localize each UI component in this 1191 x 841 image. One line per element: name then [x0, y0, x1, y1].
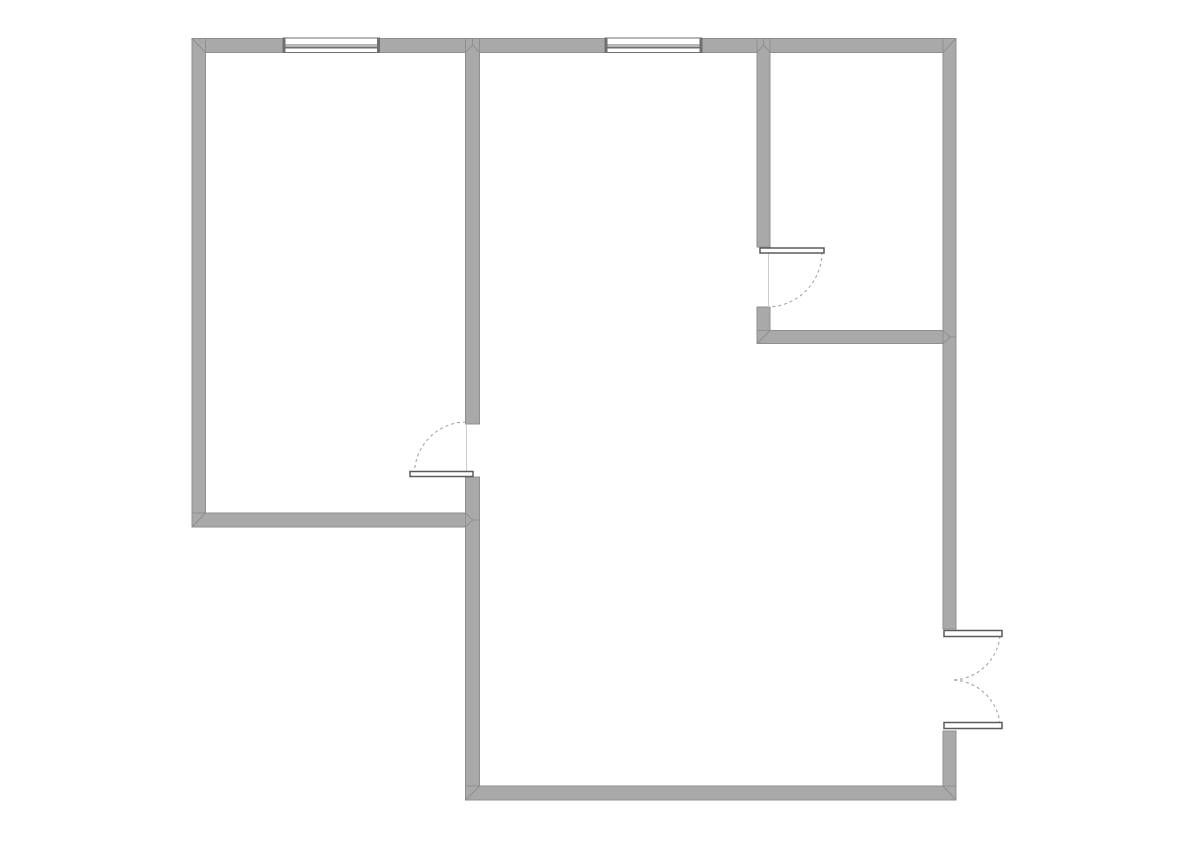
small-room-door-leaf [760, 248, 824, 253]
plan-background [0, 0, 1191, 841]
bottom-wall [466, 786, 957, 800]
floor-plan [0, 0, 1191, 841]
window-top-middle-right-cap [700, 38, 703, 53]
left-room-bottom-wall [192, 513, 480, 527]
floor-plan-page [0, 0, 1191, 841]
window-top-left-left-cap [283, 38, 286, 53]
left-room-right-wall-upper [466, 39, 480, 425]
small-room-bottom-wall [757, 331, 956, 344]
entry-double-door-bottom-leaf-leaf [944, 723, 1002, 729]
entry-double-door-top-leaf-leaf [944, 631, 1002, 637]
left-room-door-leaf [410, 472, 473, 477]
left-wall [192, 39, 206, 528]
window-top-middle-left-cap [605, 38, 608, 53]
small-room-left-wall-upper [757, 39, 770, 248]
right-wall-upper [943, 39, 956, 630]
window-top-left-right-cap [377, 38, 380, 53]
